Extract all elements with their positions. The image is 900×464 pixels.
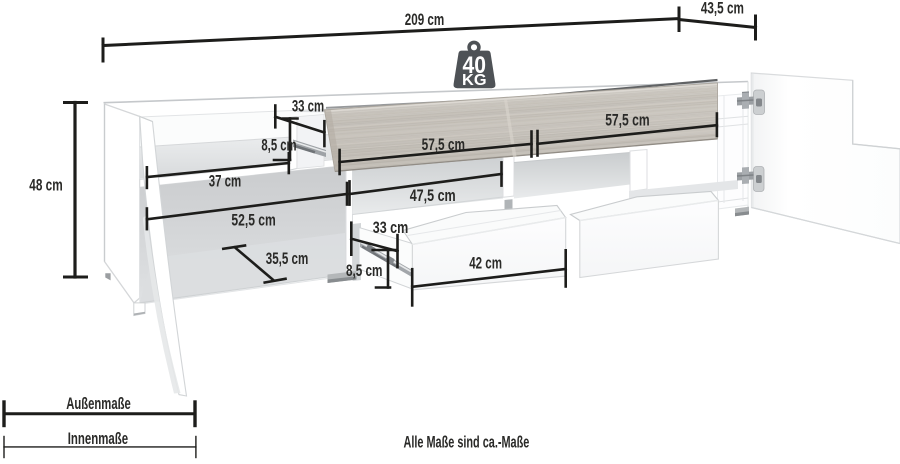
svg-text:33 cm: 33 cm [292, 97, 324, 115]
svg-text:209 cm: 209 cm [405, 11, 445, 29]
svg-text:Alle Maße sind ca.-Maße: Alle Maße sind ca.-Maße [404, 434, 530, 452]
svg-text:43,5 cm: 43,5 cm [701, 0, 744, 17]
svg-text:57,5 cm: 57,5 cm [422, 136, 465, 154]
svg-text:48 cm: 48 cm [29, 177, 62, 195]
svg-text:37 cm: 37 cm [209, 173, 242, 191]
svg-text:42 cm: 42 cm [469, 255, 502, 273]
svg-text:35,5 cm: 35,5 cm [266, 250, 309, 268]
svg-text:33 cm: 33 cm [373, 219, 409, 237]
svg-text:8,5 cm: 8,5 cm [346, 262, 383, 280]
svg-text:52,5 cm: 52,5 cm [231, 212, 275, 230]
svg-text:KG: KG [462, 72, 487, 89]
svg-text:Außenmaße: Außenmaße [66, 395, 131, 413]
svg-text:8,5 cm: 8,5 cm [261, 137, 296, 155]
svg-text:Innenmaße: Innenmaße [68, 430, 128, 448]
svg-text:47,5 cm: 47,5 cm [410, 187, 456, 205]
svg-text:57,5 cm: 57,5 cm [605, 111, 649, 129]
